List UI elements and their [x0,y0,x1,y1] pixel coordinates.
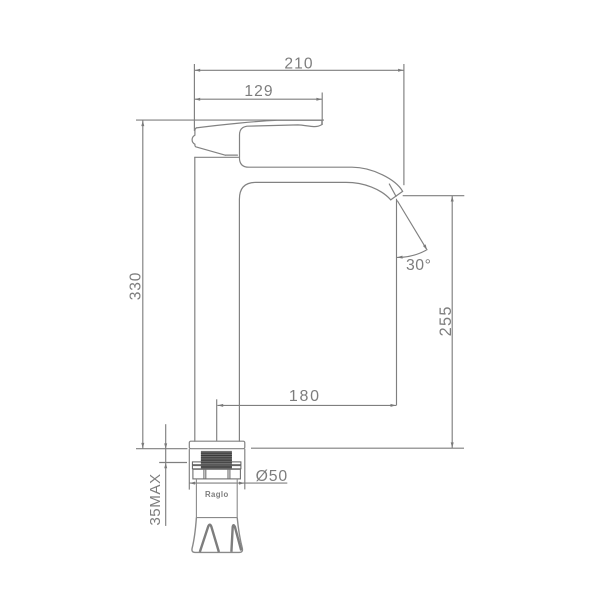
svg-text:255: 255 [437,305,455,336]
svg-text:210: 210 [284,55,313,72]
svg-text:330: 330 [127,272,144,300]
svg-text:35MAX: 35MAX [147,473,164,525]
svg-text:180: 180 [289,388,321,405]
svg-text:Raglo: Raglo [205,490,229,499]
svg-text:129: 129 [244,83,273,100]
svg-text:Ø50: Ø50 [256,468,288,485]
svg-text:30°: 30° [406,257,431,274]
